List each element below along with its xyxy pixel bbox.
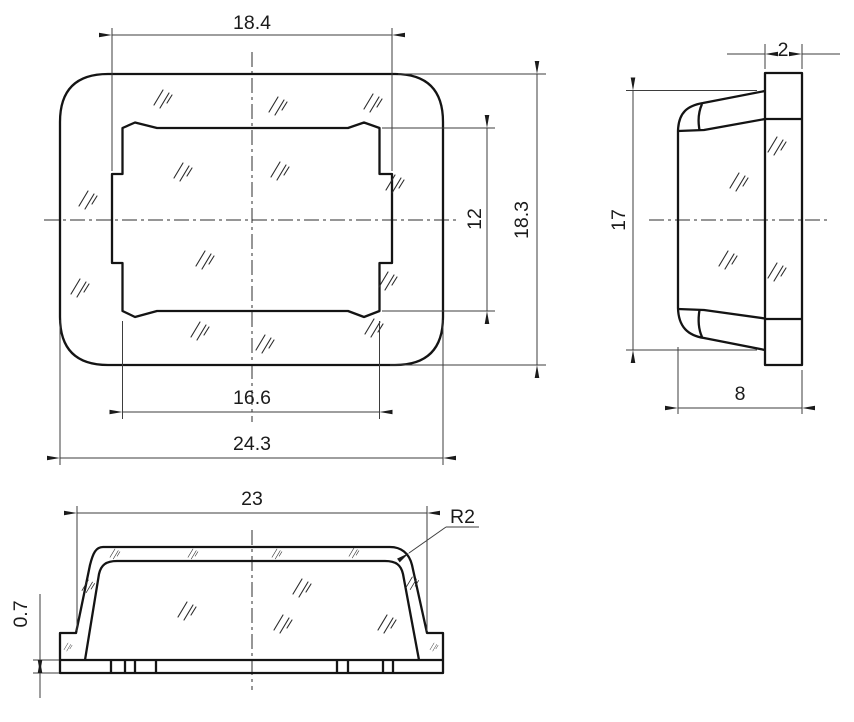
dim-bottom-corner-radius-label: R2 <box>450 506 475 528</box>
side-bottom-tangent-edge <box>699 310 702 337</box>
dim-side-flange-thickness-label: 2 <box>778 39 789 61</box>
side-flange-edges <box>765 119 802 319</box>
dim-front-inner-height-label: 12 <box>464 208 486 230</box>
dim-side-depth: 8 <box>678 347 802 414</box>
dim-front-inner-width-label: 16.6 <box>233 387 271 409</box>
dim-side-height-label: 17 <box>608 209 630 231</box>
front-view: 18.4 18.3 12 16.6 24.3 <box>44 12 546 465</box>
side-inner-top-edge <box>678 119 765 131</box>
dim-bottom-base-thickness-label: 0.7 <box>10 600 32 627</box>
bottom-hatch-marks <box>64 548 438 651</box>
technical-drawing: 18.4 18.3 12 16.6 24.3 <box>0 0 854 722</box>
bottom-view: 23 R2 0.7 <box>10 488 479 698</box>
dim-bottom-base-thickness: 0.7 <box>10 594 59 698</box>
dim-bottom-top-width-label: 23 <box>241 488 263 510</box>
side-flange-contour <box>765 73 802 365</box>
dim-front-overall-width-label: 24.3 <box>233 433 271 455</box>
side-view: 2 17 8 <box>608 39 840 414</box>
dim-front-overall-height-label: 18.3 <box>511 201 533 239</box>
dim-front-inner-width: 16.6 <box>123 321 380 419</box>
dim-front-top-width-label: 18.4 <box>233 12 271 34</box>
dim-side-flange-thickness: 2 <box>727 39 840 69</box>
drawing-canvas: 18.4 18.3 12 16.6 24.3 <box>0 0 854 722</box>
side-top-tangent-edge <box>699 104 702 130</box>
side-hatch-marks <box>719 137 786 281</box>
dim-side-depth-label: 8 <box>735 383 746 405</box>
side-inner-bottom-edge <box>678 309 765 319</box>
